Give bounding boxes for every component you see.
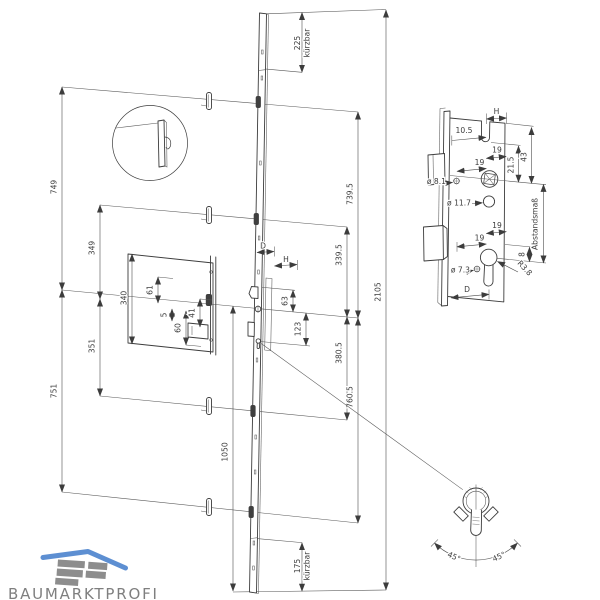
dim-handle-rail: H xyxy=(275,255,298,270)
dim-339-5: 339.5 xyxy=(335,227,348,317)
dim-label-backset-detail: D xyxy=(464,285,470,294)
projection-lines xyxy=(62,10,386,593)
dim-43: 43 xyxy=(520,128,532,184)
dim-label-751: 751 xyxy=(50,384,59,399)
espagnolette-plate xyxy=(128,254,216,355)
dim-123: 123 xyxy=(294,313,307,345)
dim-749: 749 xyxy=(50,87,63,290)
lock-case-detail: H 10.5 19 19 21.5 43 ø 8.1 ø 11. xyxy=(424,107,547,306)
dim-label-handle-detail: H xyxy=(494,107,500,116)
lock-rail: 225 kürzbar 739.5 339.5 380.5 760.5 1050… xyxy=(221,10,387,594)
dim-label-760-5: 760.5 xyxy=(346,386,355,408)
dim-dia-11-7: ø 11.7 xyxy=(447,199,482,208)
dim-1050: 1050 xyxy=(221,306,234,591)
dim-label-351: 351 xyxy=(88,339,97,354)
dim-label-61: 61 xyxy=(146,285,155,295)
technical-drawing-page: 749 751 349 351 340 61 5 xyxy=(0,0,600,600)
dim-19-bottom-a: 19 xyxy=(486,221,506,234)
dim-label-dia-8-1: ø 8.1 xyxy=(427,177,446,186)
dim-19-top-a: 19 xyxy=(486,146,506,159)
spindle-hole-detail xyxy=(483,196,494,207)
latch xyxy=(249,287,258,299)
dim-label-21-5: 21.5 xyxy=(507,156,516,173)
dim-739-5: 739.5 xyxy=(346,112,359,318)
baumarktprofi-logo: BAUMARKTPROFI xyxy=(8,552,159,600)
frame-parts-view: 749 751 349 351 340 61 5 xyxy=(50,87,216,516)
dim-label-43: 43 xyxy=(520,152,529,162)
dim-175-kuerzbar: 175 kürzbar xyxy=(293,543,312,592)
dim-label-abstandsmass: Abstandsmaß xyxy=(531,198,540,250)
dim-label-dia-11-7: ø 11.7 xyxy=(447,199,471,208)
dim-label-123: 123 xyxy=(294,322,303,337)
strike-pin-1 xyxy=(201,93,212,110)
dim-label-2105: 2105 xyxy=(374,282,383,301)
dim-label-739-5: 739.5 xyxy=(346,183,355,205)
dim-label-60: 60 xyxy=(174,323,183,333)
dim-label-backset-rail: D xyxy=(260,242,266,251)
dim-label-dia-7-3: ø 7.3 xyxy=(451,266,470,275)
dim-63: 63 xyxy=(281,290,294,312)
dim-label-340: 340 xyxy=(120,291,129,306)
dim-label-175: 175 xyxy=(293,559,302,574)
handle-bracket xyxy=(188,323,208,339)
screw-hole-8-1 xyxy=(453,177,460,184)
dim-label-8: 8 xyxy=(518,252,527,257)
dim-19-top-b: 19 xyxy=(457,158,486,171)
keyway-slot xyxy=(471,510,482,536)
dim-label-handle-rail: H xyxy=(283,255,289,264)
dim-225-kuerzbar: 225 kürzbar xyxy=(293,13,312,73)
multipoint-lock-drawing: 749 751 349 351 340 61 5 xyxy=(0,0,600,600)
dim-351: 351 xyxy=(88,299,101,396)
dim-abstandsmass: Abstandsmaß xyxy=(531,184,544,263)
dim-340: 340 xyxy=(120,254,133,344)
dim-label-225: 225 xyxy=(293,36,302,51)
dim-label-339-5: 339.5 xyxy=(335,244,344,266)
dim-label-1050: 1050 xyxy=(221,442,230,461)
screw-hole-7-3 xyxy=(473,265,480,272)
dim-5: 5 xyxy=(160,309,173,321)
cylinder-detail: 45° 45° xyxy=(261,343,522,567)
detail-circle xyxy=(113,106,188,181)
dim-label-41: 41 xyxy=(188,308,197,318)
dim-label-349: 349 xyxy=(88,241,97,256)
dim-backset-detail: D xyxy=(451,285,489,298)
dim-label-19-bottom-a: 19 xyxy=(492,221,502,230)
dim-label-380-5: 380.5 xyxy=(335,342,344,364)
dim-label-5: 5 xyxy=(160,312,169,317)
strike-pin-2 xyxy=(201,207,212,224)
dim-349: 349 xyxy=(88,205,101,299)
dim-10-5: 10.5 xyxy=(452,126,486,146)
strike-pin-4 xyxy=(201,499,212,516)
dim-21-5: 21.5 xyxy=(507,146,519,182)
dim-label-19-top-b: 19 xyxy=(475,158,485,167)
logo-text: BAUMARKTPROFI xyxy=(8,585,159,600)
dim-label-19-top-a: 19 xyxy=(492,146,502,155)
logo-bricks-icon xyxy=(55,560,108,586)
dim-label-63: 63 xyxy=(281,296,290,306)
dim-label-kuerzbar-bottom: kürzbar xyxy=(303,551,312,581)
dim-760-5: 760.5 xyxy=(346,318,359,523)
dim-2105: 2105 xyxy=(374,10,387,590)
dim-dia-7-3: ø 7.3 xyxy=(451,266,474,275)
angle-label-right: 45° xyxy=(491,550,507,564)
angle-label-left: 45° xyxy=(446,550,462,564)
faceplate xyxy=(442,111,451,306)
dim-label-19-bottom-b: 19 xyxy=(475,234,485,243)
dim-label-kuerzbar-top: kürzbar xyxy=(303,28,312,58)
deadbolt xyxy=(248,322,254,337)
dim-label-10-5: 10.5 xyxy=(456,126,473,135)
dim-751: 751 xyxy=(50,290,63,492)
dim-label-749: 749 xyxy=(50,180,59,195)
dim-handle-detail: H xyxy=(487,107,507,124)
dim-19-bottom-b: 19 xyxy=(457,234,486,247)
cylinder-cutout-detail xyxy=(480,249,497,286)
